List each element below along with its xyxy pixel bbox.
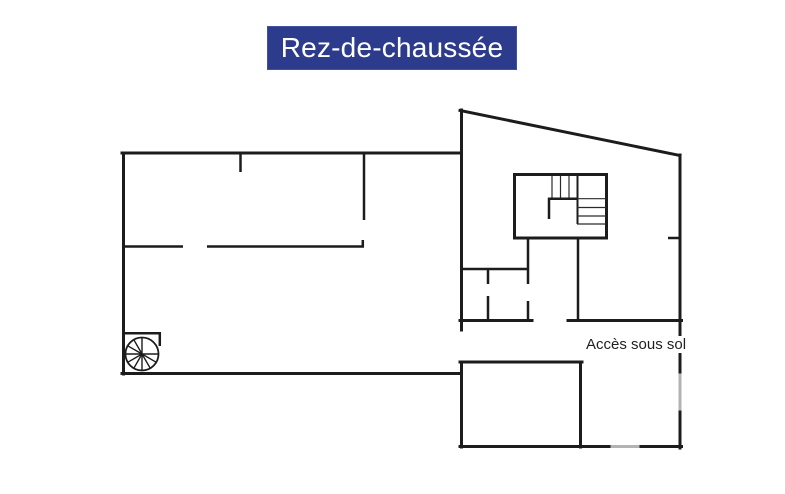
stair-treads-up	[552, 176, 569, 198]
spiral-staircase-icon	[122, 332, 161, 371]
floor-plan-page: Rez-de-chaussée	[0, 0, 785, 494]
right-wing-partitions	[460, 238, 680, 321]
left-wing-partitions	[122, 153, 364, 248]
stair-treads-down	[577, 199, 606, 224]
basement-extension	[460, 362, 682, 447]
floor-plan-drawing	[0, 0, 785, 494]
stairwell-icon	[515, 175, 607, 239]
left-wing-walls	[122, 153, 460, 374]
right-wing-walls	[460, 110, 682, 448]
basement-access-label: Accès sous sol	[586, 336, 686, 353]
stair-landing	[548, 198, 577, 219]
